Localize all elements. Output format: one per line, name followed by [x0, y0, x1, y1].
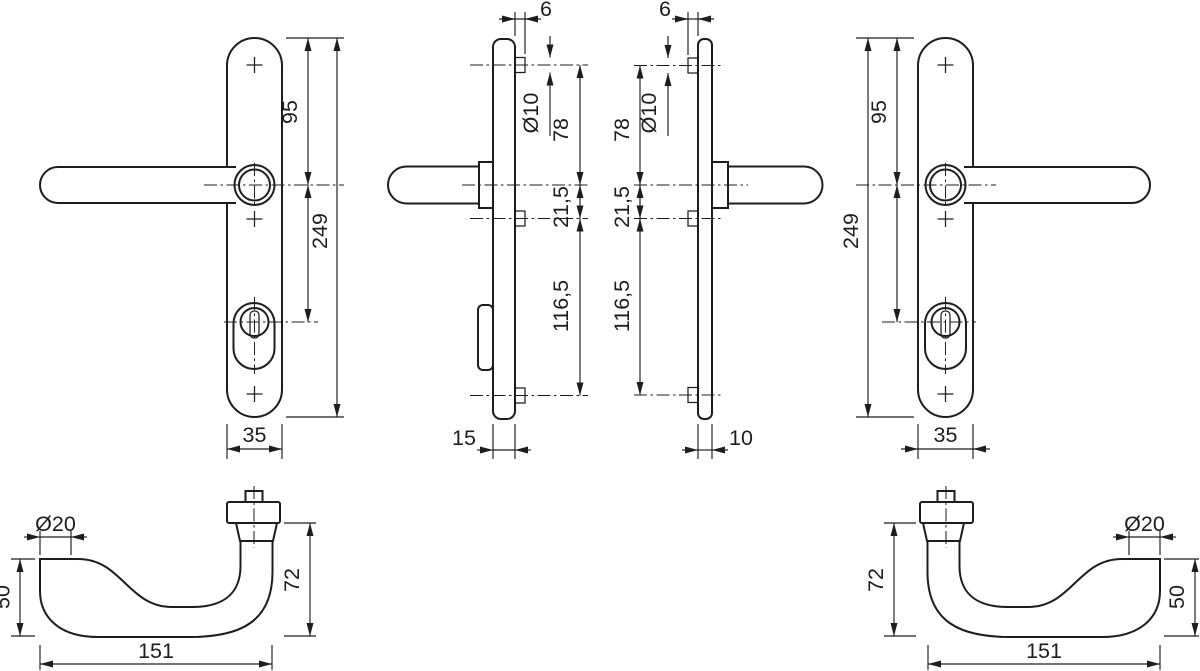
dim-label-72: 72 — [280, 568, 304, 592]
dim-label-95: 95 — [278, 100, 302, 124]
dim-label-116-5: 116,5 — [549, 280, 573, 332]
dim-label-151: 151 — [1026, 639, 1062, 663]
dim-label-35: 35 — [934, 423, 958, 447]
dim-label-78: 78 — [610, 118, 634, 142]
dim-label-116-5: 116,5 — [610, 280, 634, 332]
dim-label-151: 151 — [138, 639, 174, 663]
dim-label-21-5: 21,5 — [610, 186, 634, 228]
dim-label-o10: Ø10 — [519, 93, 543, 134]
technical-drawing-page: 95 249 35 6 Ø10 78 21,5 — [0, 0, 1200, 671]
dim-label-50: 50 — [0, 585, 15, 609]
dim-label-78: 78 — [549, 118, 573, 142]
dim-label-95: 95 — [867, 100, 891, 124]
lever-neck — [923, 523, 964, 541]
dim-label-15: 15 — [452, 426, 476, 450]
dim-label-o20: Ø20 — [35, 512, 76, 536]
door-handle-technical-drawing: 95 249 35 6 Ø10 78 21,5 — [0, 0, 1200, 671]
dim-label-o20: Ø20 — [1124, 512, 1165, 536]
dim-label-249: 249 — [308, 213, 332, 249]
dim-label-10: 10 — [729, 426, 753, 450]
dim-label-6: 6 — [659, 0, 671, 21]
dim-label-21-5: 21,5 — [549, 186, 573, 228]
cylinder-cover-profile — [478, 305, 493, 370]
dim-label-249: 249 — [839, 213, 863, 249]
background — [0, 0, 1200, 671]
dim-label-50: 50 — [1165, 585, 1189, 609]
dim-label-o10: Ø10 — [637, 93, 661, 134]
dim-label-72: 72 — [864, 568, 888, 592]
dim-label-6: 6 — [540, 0, 552, 21]
dim-label-35: 35 — [243, 423, 267, 447]
lever-neck — [236, 523, 277, 541]
